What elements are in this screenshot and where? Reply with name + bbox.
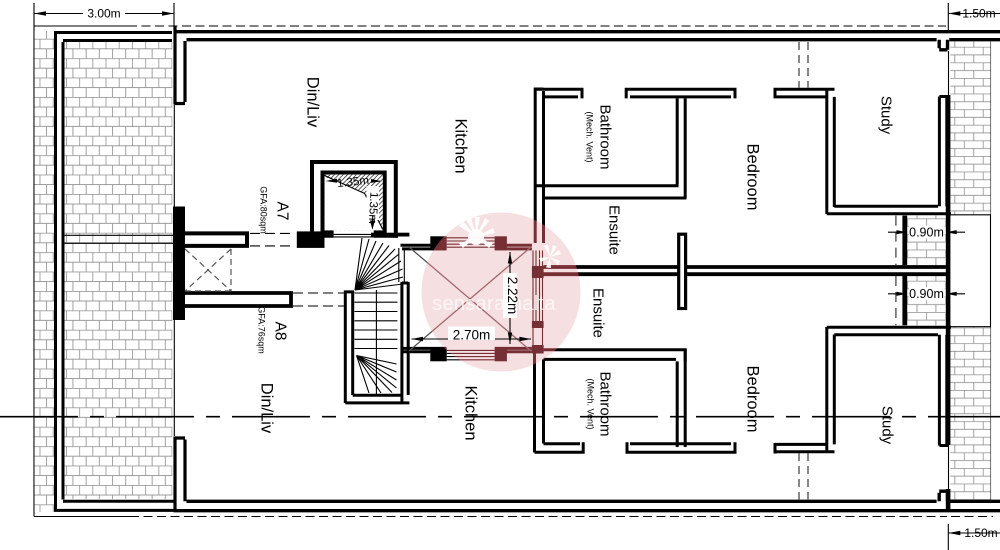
svg-text:GFA:76sqm: GFA:76sqm	[257, 306, 267, 354]
svg-text:Bathroom: Bathroom	[597, 371, 614, 436]
svg-text:Ensuite: Ensuite	[590, 288, 607, 338]
svg-text:Bedroom: Bedroom	[744, 366, 762, 433]
svg-text:Study: Study	[879, 406, 896, 445]
svg-text:sensaramalta: sensaramalta	[432, 293, 556, 315]
svg-text:Kitchen: Kitchen	[462, 385, 480, 440]
svg-text:(Mech. Vent): (Mech. Vent)	[586, 378, 596, 429]
svg-text:0.90m: 0.90m	[909, 226, 944, 240]
svg-text:2.22m: 2.22m	[505, 277, 520, 315]
svg-text:GFA:80sqm: GFA:80sqm	[259, 186, 269, 234]
svg-text:1.35m: 1.35m	[366, 192, 380, 225]
svg-text:Bathroom: Bathroom	[597, 104, 614, 169]
svg-text:Din/Liv: Din/Liv	[258, 383, 276, 434]
svg-text:1.50m: 1.50m	[962, 7, 995, 21]
svg-text:Ensuite: Ensuite	[606, 205, 623, 255]
svg-text:Bedroom: Bedroom	[744, 144, 762, 211]
svg-text:1.50m: 1.50m	[964, 526, 997, 540]
svg-text:(Mech. Vent): (Mech. Vent)	[585, 111, 595, 162]
svg-text:A7: A7	[274, 202, 291, 221]
svg-text:A8: A8	[272, 322, 289, 341]
svg-text:Kitchen: Kitchen	[452, 118, 470, 173]
svg-text:3.00m: 3.00m	[87, 7, 120, 21]
svg-text:Study: Study	[878, 96, 895, 135]
svg-text:0.90m: 0.90m	[909, 287, 944, 301]
svg-text:2.70m: 2.70m	[453, 328, 491, 343]
svg-text:Din/Liv: Din/Liv	[304, 77, 322, 128]
